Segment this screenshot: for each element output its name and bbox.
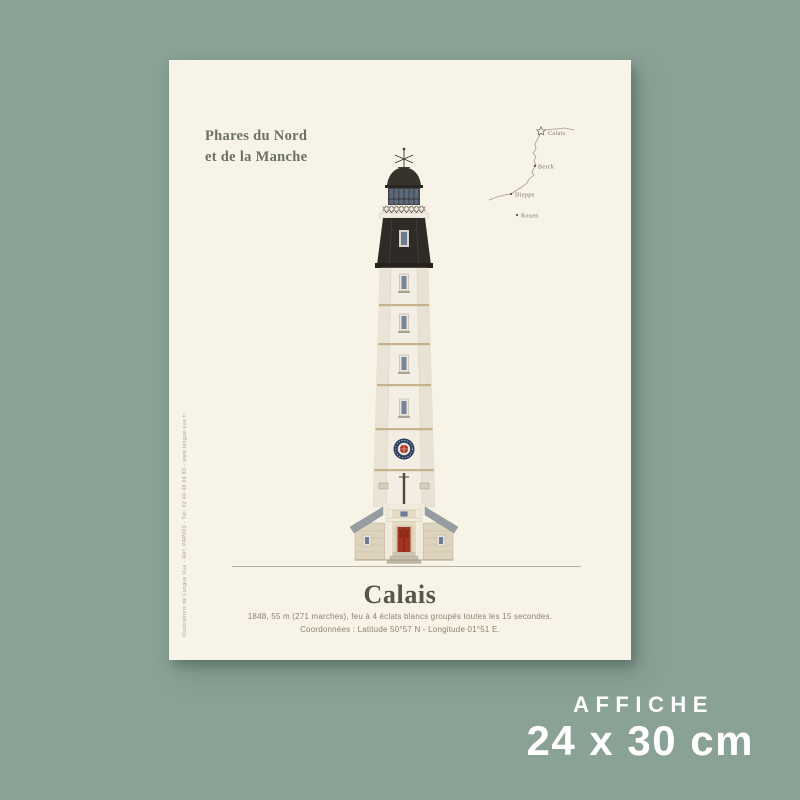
entrance-cornice [386, 518, 422, 522]
map-label-berck: Berck [538, 165, 554, 171]
base-building [350, 504, 458, 564]
coastline-path [489, 128, 574, 200]
lighthouse-description: 1848, 55 m (271 marches), feu à 4 éclats… [169, 611, 631, 636]
product-label: AFFICHE 24 x 30 cm [526, 692, 754, 763]
map-label-dieppe: Dieppe [515, 193, 535, 199]
poster: Phares du Nord et de la Manche Calais Be… [169, 60, 631, 660]
product-dimensions-label: 24 x 30 cm [526, 719, 754, 763]
steps [393, 553, 415, 557]
gallery-cornice [379, 213, 429, 218]
product-type-label: AFFICHE [526, 692, 760, 718]
round-dot-icon [516, 214, 518, 216]
antenna-tip [403, 148, 406, 151]
emblem-badge [394, 439, 415, 460]
lantern-dome [387, 167, 421, 186]
upper-window-glass [401, 232, 407, 245]
attic-vent [400, 511, 408, 517]
lighthouse-illustration [334, 146, 474, 571]
vent-right [420, 483, 429, 489]
dome-base-ring [385, 185, 423, 188]
map-illustration: Calais Berck Dieppe Rouen [477, 116, 597, 236]
vent-left [379, 483, 388, 489]
product-mockup: { "colors": { "background_green": "#8aa1… [0, 0, 800, 800]
description-line1: 1848, 55 m (271 marches), feu à 4 éclats… [169, 611, 631, 624]
credits-vertical-text: Illustrations de Longue Vue - Réf. PAP00… [182, 389, 188, 661]
corbel-band [375, 263, 433, 268]
square-dot-icon [534, 165, 536, 167]
series-title-line2: et de la Manche [205, 147, 307, 168]
map-label-calais: Calais [548, 131, 566, 137]
star-icon [537, 127, 546, 135]
series-title-line1: Phares du Nord [205, 126, 307, 147]
poster-series-title: Phares du Nord et de la Manche [205, 126, 307, 168]
ground-line [232, 566, 581, 567]
round-dot-icon [510, 193, 512, 195]
map-label-rouen: Rouen [521, 214, 539, 220]
lighthouse-name: Calais [169, 580, 631, 610]
coastline-map: Calais Berck Dieppe Rouen [477, 116, 597, 241]
lighthouse-drawing [334, 146, 474, 566]
antenna [395, 149, 413, 170]
gallery-railing [383, 206, 425, 213]
description-line2: Coordonnées : Latitude 50°57 N - Longitu… [169, 624, 631, 637]
